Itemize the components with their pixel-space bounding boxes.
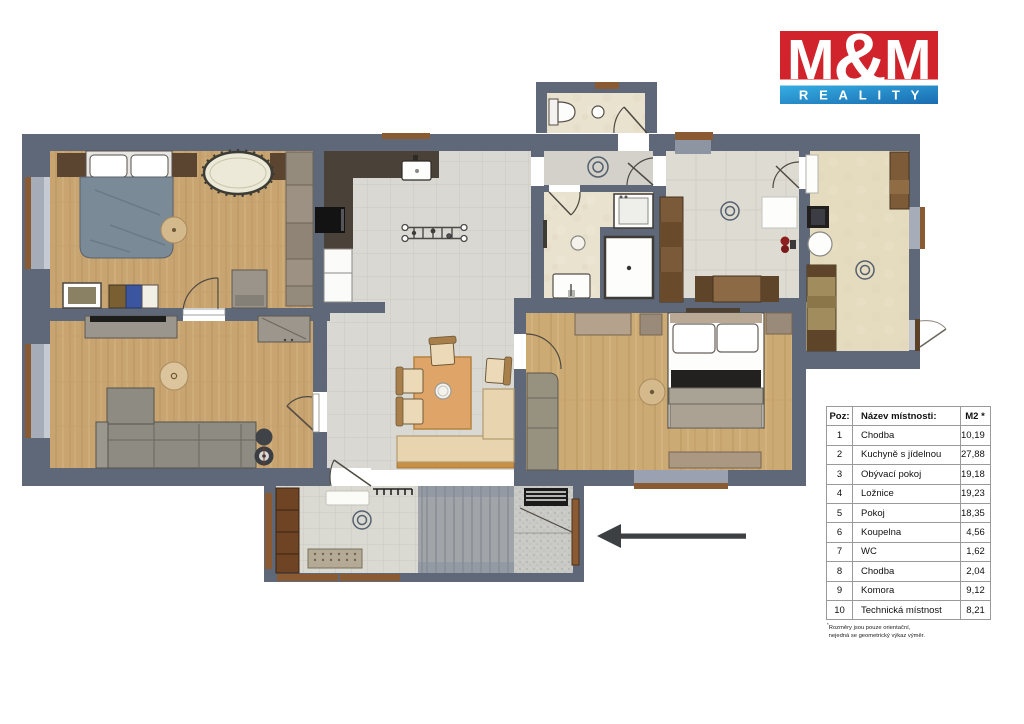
svg-text:M: M <box>787 31 834 92</box>
svg-text:REALITY: REALITY <box>799 88 930 103</box>
svg-text:M: M <box>884 31 931 92</box>
